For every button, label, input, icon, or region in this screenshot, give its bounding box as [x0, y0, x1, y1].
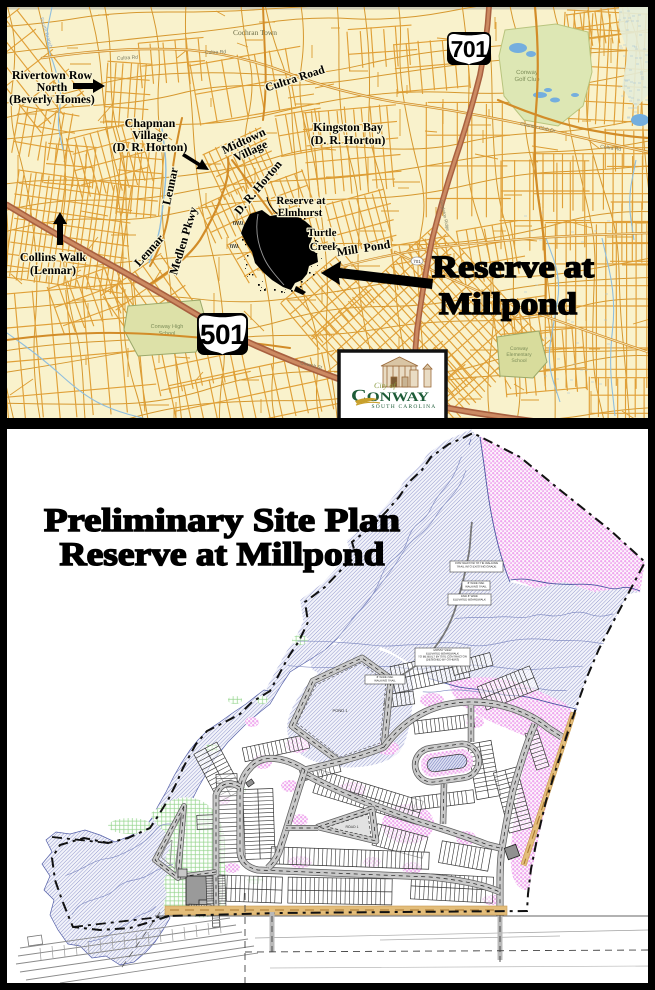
svg-text:(DESIGNED BY OTHERS): (DESIGNED BY OTHERS)	[426, 658, 459, 662]
svg-text:WALKING TRAIL: WALKING TRAIL	[374, 678, 396, 682]
svg-text:501: 501	[200, 319, 245, 350]
svg-text:Preliminary Site Plan: Preliminary Site Plan	[44, 503, 400, 539]
svg-text:701: 701	[451, 36, 489, 62]
svg-text:701: 701	[413, 259, 421, 264]
svg-text:Reserve at: Reserve at	[432, 249, 595, 284]
svg-text:POND 1: POND 1	[333, 708, 349, 713]
svg-text:(D. R. Horton): (D. R. Horton)	[311, 133, 386, 147]
svg-text:Conway High: Conway High	[151, 324, 184, 330]
svg-text:ELEVATED BOARDWALK: ELEVATED BOARDWALK	[453, 597, 486, 601]
svg-text:Cultra Rd: Cultra Rd	[205, 49, 227, 56]
svg-text:Reserve at: Reserve at	[276, 195, 326, 207]
svg-text:Kingston Bay: Kingston Bay	[313, 120, 383, 134]
svg-text:(Beverly Homes): (Beverly Homes)	[9, 92, 95, 106]
svg-text:SOUTH CAROLINA: SOUTH CAROLINA	[372, 404, 437, 410]
svg-text:Conway: Conway	[516, 69, 538, 76]
svg-text:(Lennar): (Lennar)	[30, 263, 76, 277]
svg-text:WALKING TRAIL: WALKING TRAIL	[465, 584, 487, 588]
svg-text:ROAD 1: ROAD 1	[345, 825, 358, 829]
svg-text:Elmhurst: Elmhurst	[278, 207, 323, 219]
svg-text:Cochran Town: Cochran Town	[233, 28, 277, 37]
svg-text:Millpond: Millpond	[439, 286, 577, 321]
svg-text:TRAIL INTO EXISTING GRADE: TRAIL INTO EXISTING GRADE	[457, 564, 497, 568]
svg-text:Collins Walk: Collins Walk	[20, 250, 86, 264]
svg-text:Creek: Creek	[310, 241, 339, 253]
svg-text:Reserve at Millpond: Reserve at Millpond	[60, 537, 385, 573]
svg-text:Turtle: Turtle	[308, 227, 337, 239]
svg-text:Golf Club: Golf Club	[514, 76, 540, 83]
svg-text:School: School	[511, 358, 526, 364]
svg-text:(D. R. Horton): (D. R. Horton)	[113, 140, 188, 154]
